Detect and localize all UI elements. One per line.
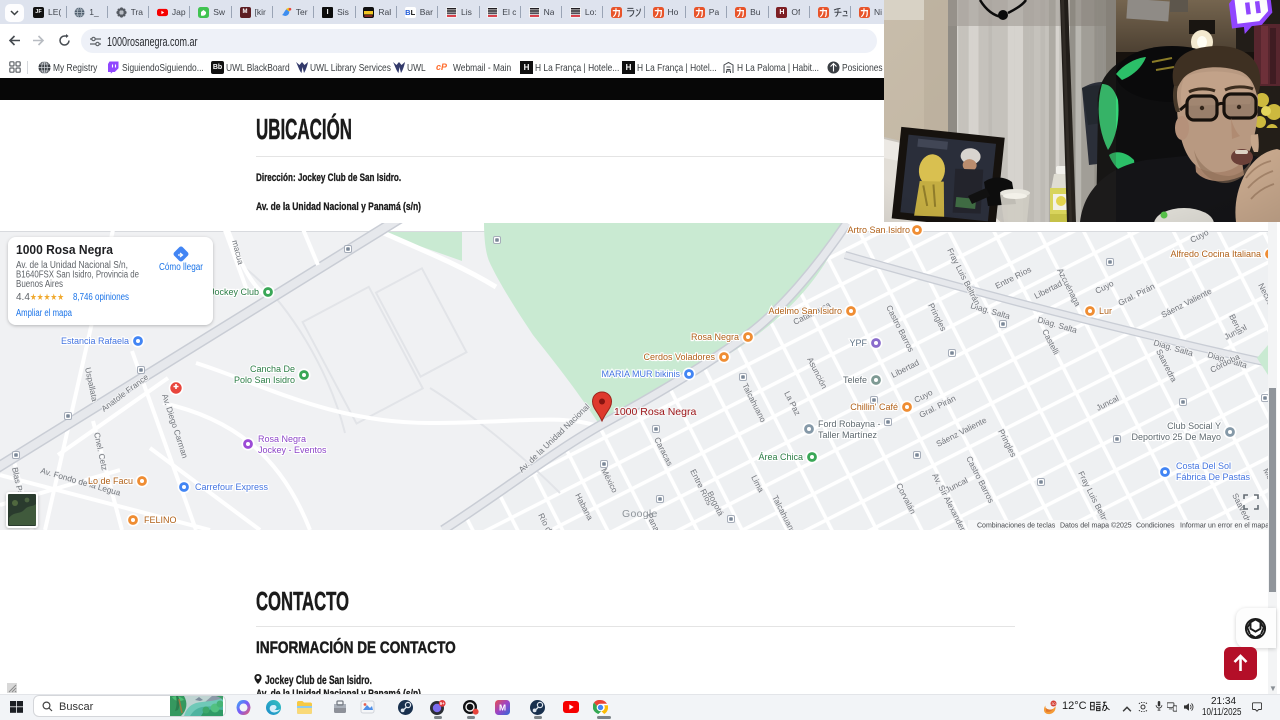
svg-text:Costa Del Sol: Costa Del Sol	[1176, 461, 1231, 471]
svg-text:YPF: YPF	[849, 338, 867, 348]
svg-text:Google: Google	[622, 508, 658, 520]
svg-text:Buenos Aires: Buenos Aires	[16, 279, 63, 290]
svg-text:Cerdos Voladores: Cerdos Voladores	[643, 352, 715, 362]
svg-text:Ford Robayna -: Ford Robayna -	[818, 419, 881, 429]
svg-text:4.4: 4.4	[16, 292, 30, 303]
svg-text:Polo San Isidro: Polo San Isidro	[234, 375, 295, 385]
svg-text:Área Chica: Área Chica	[758, 452, 803, 462]
svg-text:Cancha De: Cancha De	[250, 364, 295, 374]
svg-text:Artro San Isidro: Artro San Isidro	[847, 225, 910, 235]
svg-text:Lo de Facu: Lo de Facu	[88, 476, 133, 486]
svg-text:Taller Martínez: Taller Martínez	[818, 430, 878, 440]
svg-text:MARIA MUR bikinis: MARIA MUR bikinis	[601, 369, 680, 379]
svg-text:Rosa Negra: Rosa Negra	[258, 434, 306, 444]
svg-text:Estancia Rafaela: Estancia Rafaela	[61, 336, 129, 346]
svg-text:Jockey Club: Jockey Club	[210, 287, 259, 297]
svg-text:Jockey - Eventos: Jockey - Eventos	[258, 445, 327, 455]
svg-text:Carrefour Express: Carrefour Express	[195, 482, 269, 492]
svg-text:Lur: Lur	[1099, 306, 1112, 316]
svg-text:Telefe: Telefe	[843, 375, 867, 385]
svg-text:FELINO: FELINO	[144, 515, 177, 525]
svg-text:Chillin' Café: Chillin' Café	[850, 402, 898, 412]
svg-text:Cómo llegar: Cómo llegar	[159, 262, 204, 273]
svg-text:Alfredo Cocina Italiana: Alfredo Cocina Italiana	[1170, 249, 1261, 259]
svg-text:Condiciones: Condiciones	[1136, 523, 1175, 530]
svg-text:Deportivo 25 De Mayo: Deportivo 25 De Mayo	[1131, 432, 1221, 442]
svg-text:M: M	[499, 703, 506, 713]
svg-text:9+: 9+	[440, 701, 445, 706]
svg-text:★★★★★: ★★★★★	[30, 292, 64, 302]
svg-text:Rosa Negra: Rosa Negra	[691, 332, 739, 342]
svg-text:8,746 opiniones: 8,746 opiniones	[73, 292, 129, 303]
svg-text:1000 Rosa Negra: 1000 Rosa Negra	[614, 406, 696, 418]
svg-text:Combinaciones de teclas: Combinaciones de teclas	[977, 523, 1056, 530]
svg-text:Adelmo San Isidro: Adelmo San Isidro	[768, 306, 842, 316]
svg-text:1000 Rosa Negra: 1000 Rosa Negra	[16, 242, 114, 257]
svg-text:Informar un error en el mapa: Informar un error en el mapa	[1180, 523, 1268, 530]
svg-text:Ampliar el mapa: Ampliar el mapa	[16, 308, 72, 319]
svg-text:Fábrica De Pastas: Fábrica De Pastas	[1176, 472, 1251, 482]
svg-text:30: 30	[1052, 702, 1056, 706]
svg-text:Datos del mapa ©2025: Datos del mapa ©2025	[1060, 522, 1132, 530]
svg-text:Club Social Y: Club Social Y	[1167, 421, 1221, 431]
